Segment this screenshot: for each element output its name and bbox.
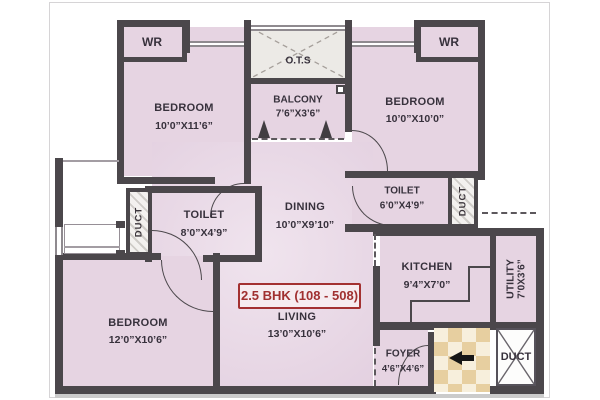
wall-segment <box>373 228 544 236</box>
room-label-utility: UTILITY 7’0X3’6” <box>505 259 528 299</box>
room-label-bedroom-top-right: BEDROOM <box>385 96 445 108</box>
room-label-bedroom-top-left: BEDROOM <box>154 102 214 114</box>
room-dims-bedroom-top-left: 10’0”X11’6” <box>155 120 213 132</box>
room-label-living: LIVING <box>278 311 316 323</box>
room-dims-foyer: 4’6”X4’6” <box>382 364 424 375</box>
wall-segment <box>116 221 125 228</box>
sill-line <box>63 160 119 162</box>
room-dims-dining: 10’0”X9’10” <box>276 219 334 231</box>
counter-line <box>468 266 470 302</box>
room-label-foyer: FOYER <box>386 349 420 360</box>
duct-right-label: DUCT <box>458 186 469 216</box>
wall-segment <box>55 386 436 394</box>
room-dims-bedroom-top-right: 10’0”X10’0” <box>386 113 444 125</box>
wall-segment <box>55 255 63 394</box>
counter-line <box>410 300 470 302</box>
opening-dashed <box>252 138 344 140</box>
wall-segment <box>345 20 352 132</box>
wall-segment <box>478 20 485 180</box>
wall-segment <box>117 20 190 27</box>
window-marker <box>190 41 244 47</box>
wall-segment <box>414 20 485 27</box>
duct-bottom-label: DUCT <box>501 351 532 363</box>
room-label-dining: DINING <box>285 201 325 213</box>
utility-dims: 7’0X3’6” <box>517 259 528 299</box>
opening-dashed <box>482 212 536 214</box>
wall-segment <box>145 186 262 193</box>
room-label-kitchen: KITCHEN <box>402 261 453 273</box>
room-label-toilet-left: TOILET <box>184 209 225 221</box>
wall-segment <box>414 20 421 53</box>
wall-segment <box>117 20 124 183</box>
door-swing-icon <box>258 120 270 138</box>
ots-hatch-icon <box>251 28 345 78</box>
wall-segment <box>490 386 544 394</box>
room-dims-toilet-left: 8’0”X4’9” <box>181 227 228 239</box>
counter-line <box>468 266 490 268</box>
plan-shadow <box>55 394 544 398</box>
room-dims-living: 13’0”X10’6” <box>268 328 326 340</box>
room-dims-kitchen: 9’4”X7’0” <box>404 279 451 291</box>
wall-segment <box>117 177 215 184</box>
door-hinge-box <box>336 85 345 94</box>
utility-name: UTILITY <box>505 259 517 299</box>
wardrobe-right-label: WR <box>439 35 459 49</box>
wall-segment <box>244 78 352 84</box>
counter-line <box>410 300 412 324</box>
wall-segment <box>373 266 380 346</box>
room-label-bedroom-bottom-left: BEDROOM <box>108 317 168 329</box>
window-marker <box>55 227 63 255</box>
wall-segment <box>255 186 262 262</box>
wall-segment <box>490 230 496 322</box>
wall-segment <box>536 228 544 394</box>
wall-segment <box>55 158 63 227</box>
window-marker <box>251 25 345 31</box>
window-bay <box>64 224 120 254</box>
plan-badge: 2.5 BHK (108 - 508) <box>238 283 361 309</box>
room-dims-bedroom-bottom-left: 12’0”X10’6” <box>109 334 167 346</box>
wall-segment <box>116 250 125 257</box>
room-label-balcony: BALCONY <box>273 95 322 106</box>
wall-segment <box>244 20 251 184</box>
room-label-toilet-right: TOILET <box>384 186 419 197</box>
room-dims-toilet-right: 6’0”X4’9” <box>380 201 424 212</box>
wall-segment <box>183 20 190 53</box>
wall-segment <box>213 253 220 394</box>
sill-line <box>64 246 120 248</box>
entrance-arrow-icon <box>449 351 475 365</box>
window-marker <box>352 41 414 47</box>
door-swing-icon <box>320 120 332 138</box>
room-dims-balcony: 7’6”X3’6” <box>276 109 320 120</box>
opening-dashed <box>374 348 376 386</box>
opening-dashed <box>374 234 376 266</box>
room-label-ots: O.T.S <box>285 56 310 67</box>
wardrobe-left-label: WR <box>142 35 162 49</box>
duct-left-label: DUCT <box>134 207 145 237</box>
floor-plan: 2.5 BHK (108 - 508) BEDROOM 10’0”X11’6” … <box>0 0 600 400</box>
